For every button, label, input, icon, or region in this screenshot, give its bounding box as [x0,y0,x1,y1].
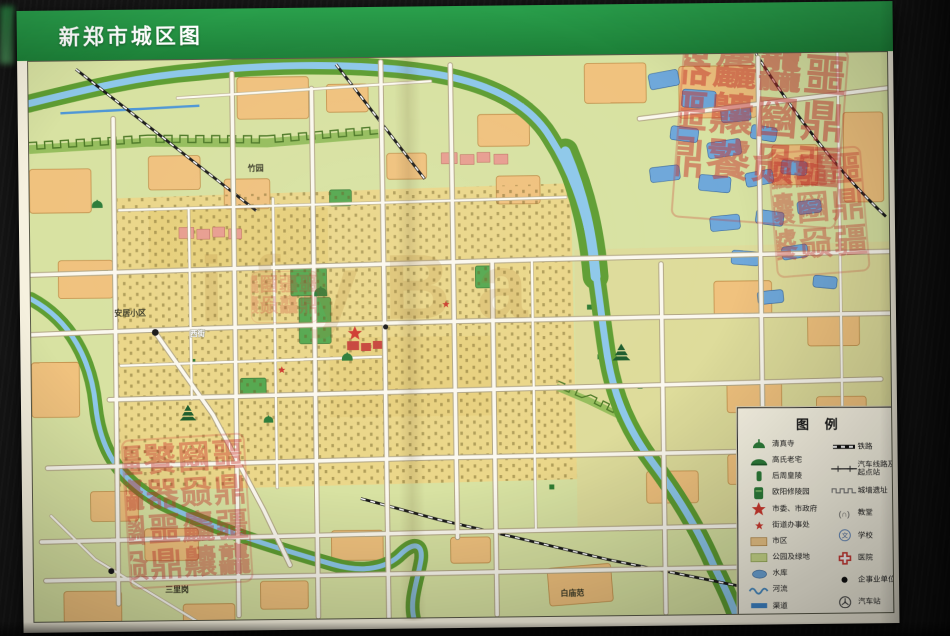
church-icon: (∩) [831,508,858,518]
legend-item-label: 渠道 [773,602,788,611]
legend-item: (∩)教堂 [831,502,895,524]
legend-item-label: 企事业单位 [858,575,894,584]
place-label: 竹园 [247,163,264,173]
legend-item: 文学校 [831,524,895,546]
legend-item-label: 城墙遗址 [858,487,888,496]
map-book-page: 新郑市城区图 [17,1,900,633]
legend-item: 城墙遗址 [831,480,895,502]
legend-box: 图 例 清真寺高氏老宅后周皇陵欧阳修陵园市委、市政府街道办事处市区公园及绿地水库… [737,407,895,620]
busroute-icon [831,464,858,474]
reservoir-icon [745,569,772,579]
legend-item-label: 欧阳修陵园 [772,488,810,497]
legend-item-label: 高氏老宅 [772,456,802,465]
urban-icon [745,537,772,546]
star-big-icon [745,501,772,516]
legend-item-label: 医院 [858,553,873,562]
legend-right-column: 铁路汽车线路及起点站城墙遗址(∩)教堂文学校医院企事业单位汽车站 [830,436,894,614]
river-icon [746,585,773,595]
legend-item: 医院 [831,547,894,569]
legend-item: 街道办事处 [745,517,831,534]
legend-item: 汽车站 [831,591,894,613]
legend-item: 后周皇陵 [745,468,831,485]
legend-item: 铁路 [830,436,894,458]
page-title: 新郑市城区图 [59,20,203,52]
legend-item-label: 教堂 [858,509,873,518]
legend-item: 渠道 [746,598,832,615]
legend-item: 河流 [746,582,832,599]
wall-icon [831,487,858,495]
legend-left-column: 清真寺高氏老宅后周皇陵欧阳修陵园市委、市政府街道办事处市区公园及绿地水库河流渠道 [745,436,831,614]
mosque-icon [745,438,772,450]
legend-item-label: 街道办事处 [772,521,810,530]
legend-item-label: 公园及绿地 [772,553,810,562]
old-house-icon [745,455,772,466]
legend-title: 图 例 [745,414,895,434]
svg-text:文: 文 [841,531,848,540]
school-icon: 文 [831,529,858,542]
hospital-icon [831,551,858,564]
legend-item-label: 市区 [772,537,787,546]
railway-icon [830,444,857,450]
legend-item-label: 水库 [772,569,787,578]
mausoleum-icon [745,486,772,500]
place-label: 白庙范 [560,588,584,598]
tomb-icon [745,471,772,483]
legend-item-label: 市委、市政府 [772,504,817,513]
park-icon [745,553,772,562]
canal-icon [746,603,773,610]
enterprise-icon [831,576,858,584]
city-map: 三里岗 白庙范 竹园 安居小区 西街 噩鼎疆龘圝赑麤齉饕器噩鼎疆龘圝赑麤齉饕器噩… [27,51,894,623]
svg-text:(∩): (∩) [839,509,850,518]
legend-item-label: 汽车站 [858,598,881,607]
legend-item-label: 汽车线路及起点站 [858,460,895,477]
legend-item: 公园及绿地 [745,549,831,566]
road-label: 西街 [190,328,206,338]
legend-item-label: 学校 [858,531,873,540]
legend-item: 企事业单位 [831,569,894,591]
legend-item-label: 河流 [773,586,788,595]
bus-station-icon [831,596,858,609]
legend-item: 市委、市政府 [745,501,831,518]
place-label: 安居小区 [114,308,146,318]
star-small-icon [745,520,772,530]
legend-item: 高氏老宅 [745,452,831,469]
legend-item-label: 铁路 [857,442,872,451]
legend-item: 欧阳修陵园 [745,484,831,501]
legend-item: 清真寺 [745,436,831,453]
previous-page-edge [0,6,14,64]
legend-item: 水库 [745,565,831,582]
place-label: 三里岗 [165,584,189,594]
legend-item: 汽车线路及起点站 [831,458,895,480]
legend-item: 市区 [745,533,831,550]
legend-item-label: 后周皇陵 [772,472,802,481]
legend-item-label: 清真寺 [772,440,795,449]
